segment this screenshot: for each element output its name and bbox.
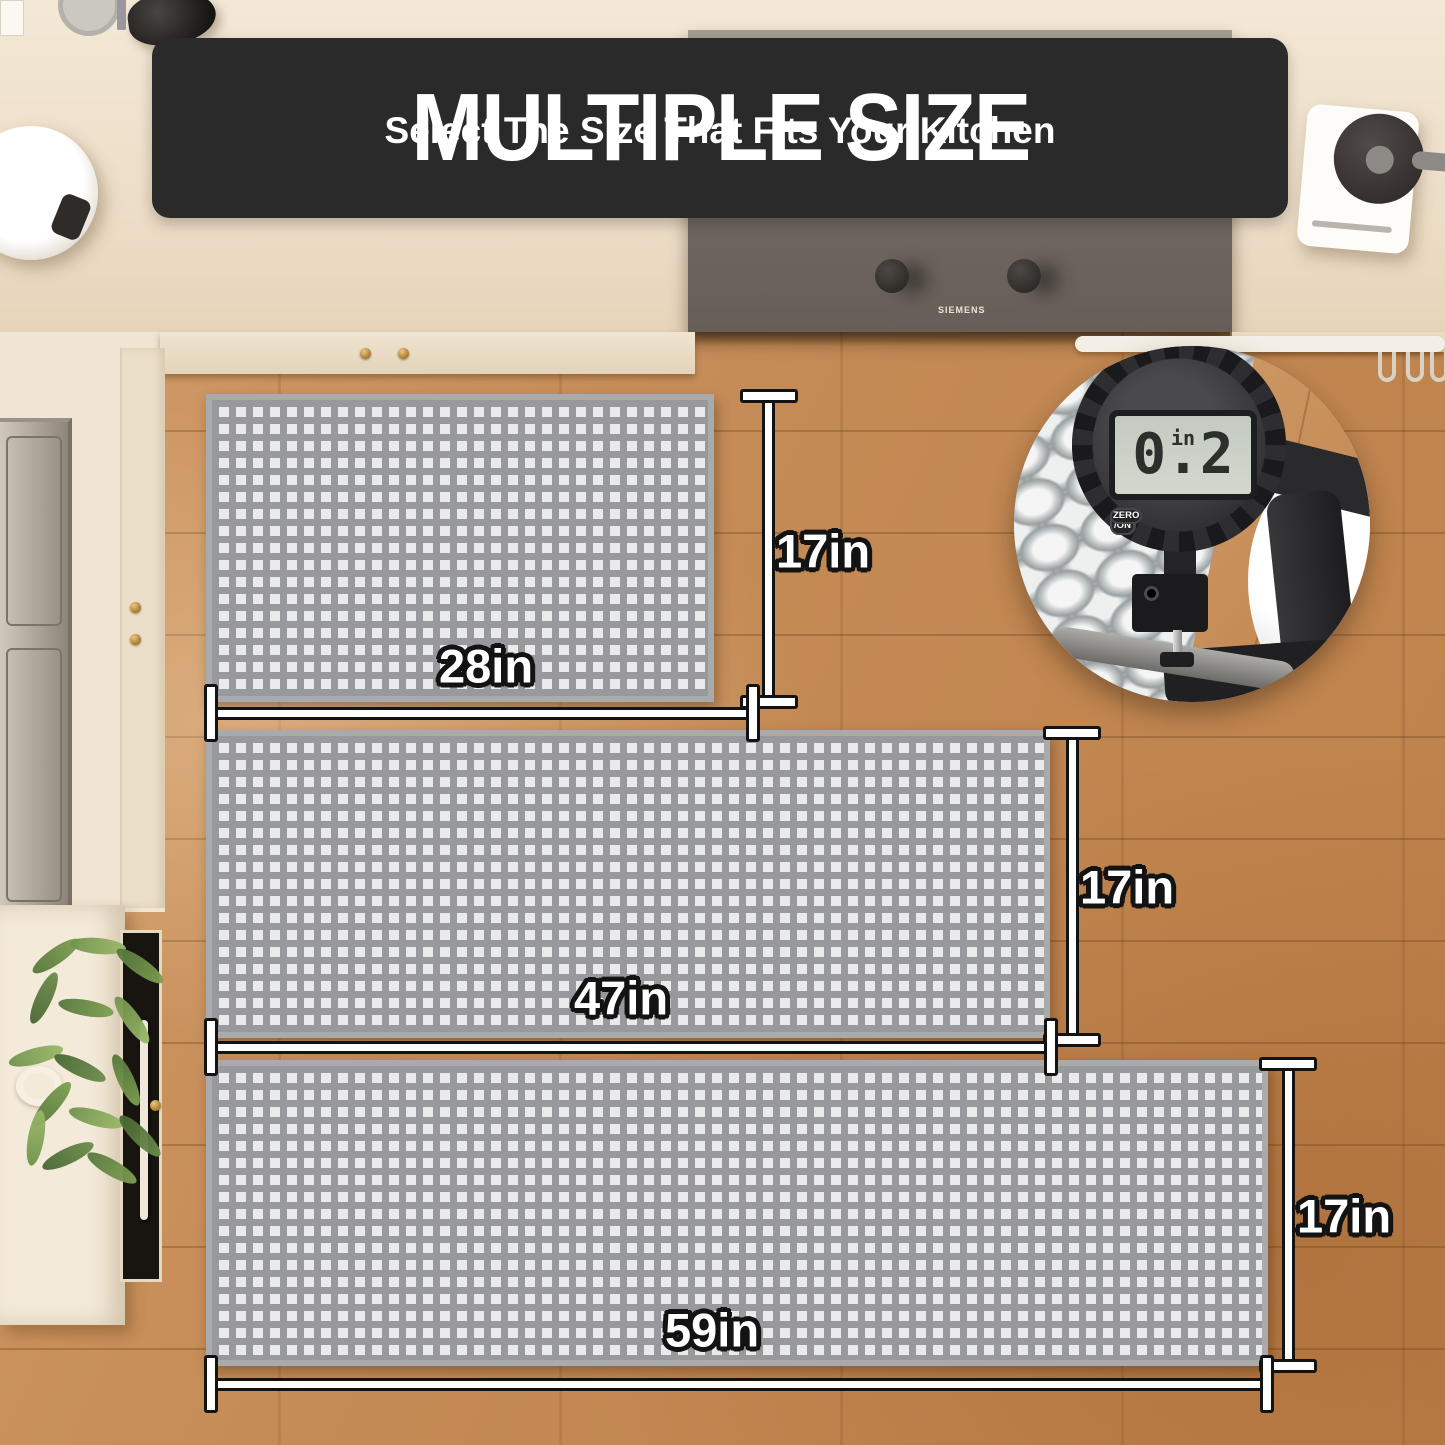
dimension-cap: [1259, 1057, 1317, 1071]
dimension-line-large-width: [211, 1378, 1267, 1391]
thickness-gauge-inset: 0.2 in inch /mm OFF /ON ZERO: [1014, 346, 1370, 702]
door-knob: [130, 602, 141, 613]
pantry-door: [120, 348, 165, 908]
knife: [117, 0, 126, 30]
cooktop-brand-label: SIEMENS: [938, 305, 986, 315]
product-size-infographic: SIEMENS MULTIPLE SIZE Select The Size Th…: [0, 0, 1445, 1445]
dimension-line-medium-height: [1066, 733, 1079, 1040]
dimension-cap: [204, 684, 218, 742]
door-knob: [130, 634, 141, 645]
dimension-line-medium-width: [211, 1041, 1051, 1054]
upper-cabinet-strip: [160, 332, 695, 374]
dimension-line-small-width: [211, 707, 753, 720]
stainless-appliance: [0, 418, 72, 908]
appliance-door-lower: [6, 648, 62, 902]
hook-icon: [1430, 352, 1445, 382]
size-label-large-height: 17in: [1297, 1189, 1391, 1244]
size-label-large-width: 59in: [665, 1303, 759, 1358]
gauge-unit: in: [1171, 426, 1195, 450]
dimension-cap: [204, 1018, 218, 1076]
cabinet-knob: [398, 348, 409, 359]
size-label-medium-height: 17in: [1080, 860, 1174, 915]
gauge-button-zero: ZERO: [1110, 508, 1142, 524]
corner-appliance: [0, 0, 24, 36]
cabinet-knob: [150, 1100, 161, 1111]
dimension-cap: [1043, 726, 1101, 740]
hook-icon: [1406, 352, 1424, 382]
gauge-lcd-display: 0.2 in: [1109, 410, 1257, 500]
dimension-cap: [1260, 1355, 1274, 1413]
appliance-door-upper: [6, 436, 62, 626]
screw-icon: [1144, 586, 1159, 601]
dimension-line-small-height: [762, 396, 775, 702]
size-label-medium-width: 47in: [574, 971, 668, 1026]
dimension-cap: [746, 684, 760, 742]
coffee-maker-vent: [1312, 220, 1392, 233]
hook-icon: [1378, 352, 1396, 382]
headline-banner: MULTIPLE SIZE Select The Size That Fits …: [152, 38, 1288, 218]
size-label-small-height: 17in: [776, 524, 870, 579]
banner-subtitle: Select The Size That Fits Your Kitchen: [385, 110, 1056, 152]
cooktop-knob-left: [875, 259, 909, 293]
gauge-buttons: inch /mm OFF /ON ZERO: [1110, 508, 1258, 544]
gauge-housing: [1132, 574, 1208, 632]
cabinet-knob: [360, 348, 371, 359]
dimension-line-large-height: [1282, 1064, 1295, 1366]
dimension-cap: [740, 389, 798, 403]
size-label-small-width: 28in: [439, 639, 533, 694]
coffee-maker: [1296, 103, 1420, 254]
cooktop-knob-right: [1007, 259, 1041, 293]
gauge-anvil: [1160, 652, 1194, 667]
dimension-cap: [1044, 1018, 1058, 1076]
cabinet-handle: [140, 1020, 148, 1220]
dimension-cap: [204, 1355, 218, 1413]
